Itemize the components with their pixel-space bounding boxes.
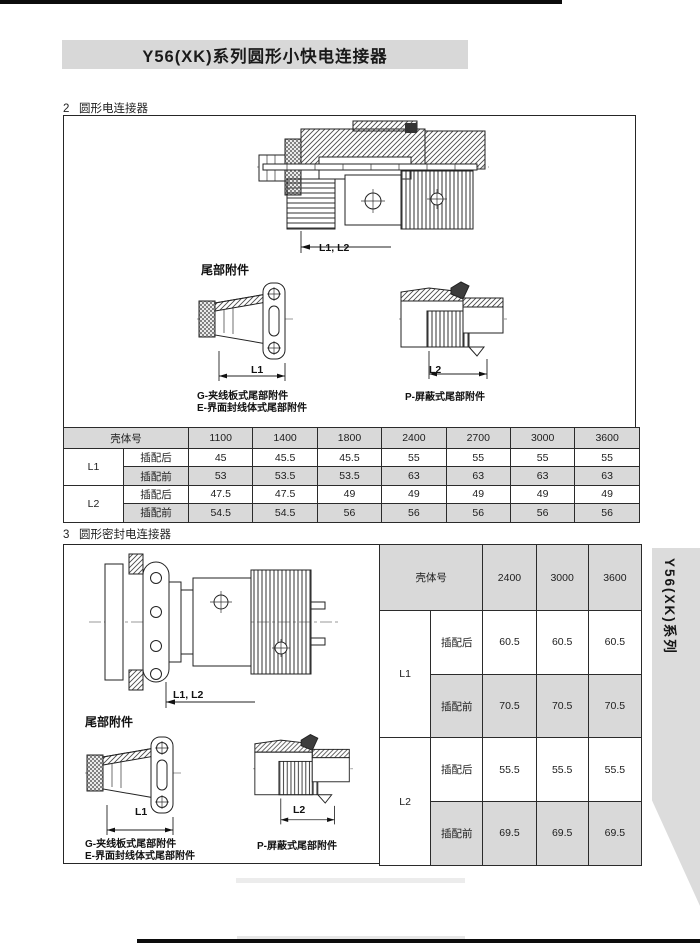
cell: 49 <box>446 485 510 503</box>
cell: 45 <box>189 449 253 467</box>
dimension-table-section2: 壳体号 1100 1400 1800 2400 2700 3000 3600 L… <box>63 427 640 523</box>
cell: 45.5 <box>253 449 317 467</box>
table-row: L2 插配后 55.5 55.5 55.5 <box>380 738 642 802</box>
cell: 45.5 <box>317 449 381 467</box>
row-label: 插配后 <box>431 611 483 675</box>
column-header: 1100 <box>189 428 253 449</box>
caption-interface-seal-tail-2: E-界面封线体式尾部附件 <box>85 847 195 862</box>
cell: 47.5 <box>253 485 317 503</box>
assembly-dim-label: L1, L2 <box>319 242 349 254</box>
column-header: 3000 <box>510 428 574 449</box>
cell: 69.5 <box>536 802 588 866</box>
cell: 55.5 <box>588 738 641 802</box>
caption-interface-seal-tail: E-界面封线体式尾部附件 <box>197 399 307 414</box>
page-title-text: Y56(XK)系列圆形小快电连接器 <box>142 43 387 67</box>
column-header: 3000 <box>536 545 588 611</box>
cell: 70.5 <box>588 674 641 738</box>
section3-heading: 3 圆形密封电连接器 <box>63 526 171 542</box>
section2-heading: 2 圆形电连接器 <box>63 100 148 116</box>
tail-p-dim-label: L2 <box>429 364 441 376</box>
cell: 56 <box>382 504 446 522</box>
cell: 53.5 <box>317 467 381 485</box>
scan-edge-bar-bottom <box>137 939 700 943</box>
cell: 56 <box>510 504 574 522</box>
cell: 55.5 <box>536 738 588 802</box>
table-row: 壳体号 2400 3000 3600 <box>380 545 642 611</box>
caption-shielded-tail-2: P-屏蔽式尾部附件 <box>257 837 337 852</box>
section3-panel: L1, L2 尾部附件 L1 G-夹线板式尾部附件 E-界面封线体式尾部附件 L… <box>63 544 639 864</box>
group-label: L1 <box>64 449 124 486</box>
column-header: 3600 <box>575 428 640 449</box>
cell: 54.5 <box>253 504 317 522</box>
cell: 70.5 <box>536 674 588 738</box>
cell: 56 <box>317 504 381 522</box>
cell: 60.5 <box>536 611 588 675</box>
column-header: 1800 <box>317 428 381 449</box>
cell: 54.5 <box>189 504 253 522</box>
table-row: L1 插配后 60.5 60.5 60.5 <box>380 611 642 675</box>
row-label: 插配前 <box>124 504 189 522</box>
cell: 53 <box>189 467 253 485</box>
column-header: 3600 <box>588 545 641 611</box>
column-header: 2400 <box>483 545 536 611</box>
cell: 63 <box>446 467 510 485</box>
cell: 60.5 <box>483 611 536 675</box>
dimension-table-section3: 壳体号 2400 3000 3600 L1 插配后 60.5 60.5 60.5… <box>379 544 642 866</box>
tail-accessory-p-drawing <box>399 275 507 385</box>
series-side-tab-label: Y56(XK)系列 <box>661 558 681 655</box>
tail-accessory-ge-drawing <box>197 273 293 385</box>
scan-edge-bar-top <box>0 0 562 4</box>
connector-assembly-drawing <box>257 117 489 257</box>
table-row: 插配前 54.5 54.5 56 56 56 56 56 <box>64 504 640 522</box>
group-label: L2 <box>64 485 124 522</box>
cell: 56 <box>575 504 640 522</box>
tail-ge-dim-label-2: L1 <box>135 806 147 818</box>
column-header: 2400 <box>382 428 446 449</box>
tail-p-dim-label-2: L2 <box>293 804 305 816</box>
shell-number-header: 壳体号 <box>380 545 483 611</box>
column-header: 2700 <box>446 428 510 449</box>
cell: 49 <box>382 485 446 503</box>
cell: 60.5 <box>588 611 641 675</box>
cell: 69.5 <box>588 802 641 866</box>
tail-accessory-ge-drawing-2 <box>85 727 181 839</box>
cell: 63 <box>575 467 640 485</box>
cell: 55 <box>446 449 510 467</box>
scan-smudge-upper <box>236 878 465 883</box>
cell: 49 <box>317 485 381 503</box>
row-label: 插配前 <box>431 674 483 738</box>
cell: 63 <box>510 467 574 485</box>
shell-number-header: 壳体号 <box>64 428 189 449</box>
cell: 49 <box>575 485 640 503</box>
cell: 55.5 <box>483 738 536 802</box>
cell: 56 <box>446 504 510 522</box>
section2-panel: L1, L2 尾部附件 L1 G-夹线板式尾部附件 E-界面封线体式尾部附件 L… <box>63 115 636 521</box>
page-title: Y56(XK)系列圆形小快电连接器 <box>62 40 468 69</box>
column-header: 1400 <box>253 428 317 449</box>
row-label: 插配前 <box>124 467 189 485</box>
row-label: 插配后 <box>124 485 189 503</box>
cell: 55 <box>510 449 574 467</box>
tail-ge-dim-label: L1 <box>251 364 263 376</box>
cell: 63 <box>382 467 446 485</box>
table-row: L1 插配后 45 45.5 45.5 55 55 55 55 <box>64 449 640 467</box>
cell: 49 <box>510 485 574 503</box>
group-label: L1 <box>380 611 431 738</box>
sealed-connector-drawing <box>85 552 357 710</box>
table-row: 壳体号 1100 1400 1800 2400 2700 3000 3600 <box>64 428 640 449</box>
group-label: L2 <box>380 738 431 865</box>
caption-shielded-tail: P-屏蔽式尾部附件 <box>405 388 485 403</box>
row-label: 插配后 <box>124 449 189 467</box>
cell: 69.5 <box>483 802 536 866</box>
row-label: 插配后 <box>431 738 483 802</box>
cell: 55 <box>382 449 446 467</box>
cell: 47.5 <box>189 485 253 503</box>
row-label: 插配前 <box>431 802 483 866</box>
table-row: L2 插配后 47.5 47.5 49 49 49 49 49 <box>64 485 640 503</box>
sealed-dim-label: L1, L2 <box>173 689 203 701</box>
table-row: 插配前 53 53.5 53.5 63 63 63 63 <box>64 467 640 485</box>
cell: 70.5 <box>483 674 536 738</box>
cell: 53.5 <box>253 467 317 485</box>
catalog-page: { "title_bar": { "text": "Y56(XK)系列圆形小快电… <box>0 0 700 943</box>
cell: 55 <box>575 449 640 467</box>
